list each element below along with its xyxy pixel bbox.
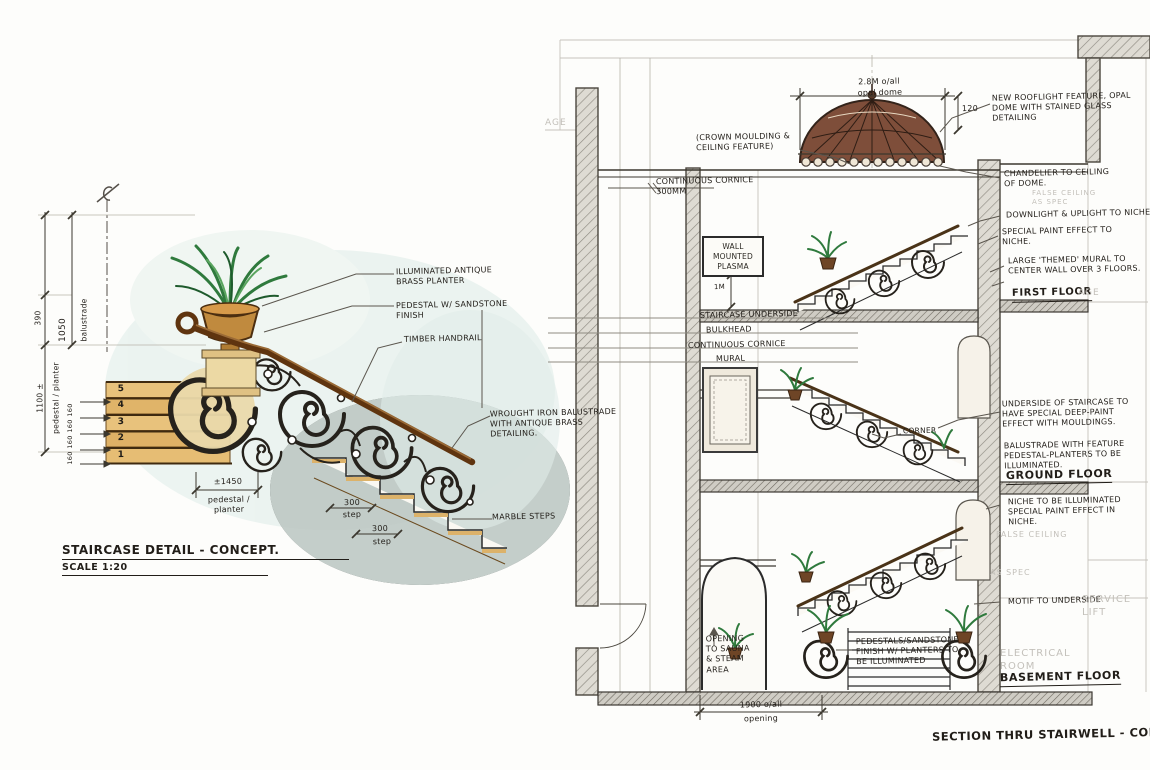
cad-fragment-left: AGE: [545, 118, 567, 130]
dim-riser-160: 160: [66, 403, 74, 416]
dim-1100: 1100 ±: [36, 383, 45, 413]
note-corner: CORNER: [903, 426, 937, 436]
note-timber-handrail: TIMBER HANDRAIL: [404, 333, 482, 345]
note-continuous-cornice-300: CONTINUOUS CORNICE 300MM: [656, 175, 768, 198]
dim-riser-160: 160: [66, 419, 74, 432]
note-rooflight: NEW ROOFLIGHT FEATURE, OPAL DOME WITH ST…: [992, 90, 1143, 124]
dim-dome-rise: 120: [962, 104, 978, 115]
cad-as-spec: AS SPEC: [990, 568, 1031, 578]
sketch-linework: [0, 0, 1150, 770]
centerline: [97, 184, 119, 352]
sandstone-pedestal: [202, 350, 260, 396]
dim-going-300: 300: [360, 524, 400, 535]
cad-false-ceiling: FALSE CEILING AS SPEC: [1032, 189, 1102, 207]
cad-fragment-first: AGE: [1078, 288, 1100, 300]
dim-going-word: step: [362, 537, 402, 548]
step-number: 2: [114, 433, 128, 445]
left-scale: SCALE 1:20: [62, 562, 268, 576]
note-niche-illuminated: NICHE TO BE ILLUMINATED SPECIAL PAINT EF…: [1008, 495, 1141, 528]
dim-going-word: step: [334, 510, 370, 521]
note-mural-wall: LARGE 'THEMED' MURAL TO CENTER WALL OVER…: [1008, 254, 1143, 277]
dim-balustrade-word: balustrade: [80, 298, 89, 341]
note-mural: MURAL: [716, 354, 745, 365]
framed-mirror: [703, 368, 757, 452]
dim-dome-width: 2.8M o/all: [848, 76, 910, 88]
floor-label-basement: BASEMENT FLOOR: [1000, 669, 1121, 688]
dim-riser-160: 160: [66, 451, 74, 464]
note-continuous-cornice: CONTINUOUS CORNICE: [688, 339, 786, 351]
dim-1050: 1050: [58, 318, 68, 342]
dim-opening-word: opening: [736, 713, 786, 724]
note-pedestal-sandstone: PEDESTAL W/ SANDSTONE FINISH: [396, 299, 508, 322]
dim-1450: ±1450: [197, 476, 259, 488]
note-wrought-iron-balustrade: WROUGHT IRON BALUSTRADE WITH ANTIQUE BRA…: [490, 407, 633, 441]
cad-false-ceiling-2: FALSE CEILING: [996, 530, 1067, 540]
step-number: 4: [114, 400, 128, 412]
dim-dome-word: opal dome: [850, 87, 910, 98]
left-title: STAIRCASE DETAIL - CONCEPT.: [62, 543, 349, 560]
note-bulkhead: BULKHEAD: [706, 325, 752, 336]
note-sauna-opening: OPENING TO SAUNA & STEAM AREA: [706, 633, 759, 675]
note-illuminated-planter: ILLUMINATED ANTIQUE BRASS PLANTER: [396, 265, 518, 288]
step-number: 3: [114, 417, 128, 429]
section-drawing: [545, 36, 1150, 720]
note-wall-mounted-plasma: WALL MOUNTED PLASMA: [702, 236, 764, 277]
step-number: 1: [114, 450, 128, 462]
note-crown-moulding: (CROWN MOULDING & CEILING FEATURE): [696, 131, 814, 154]
note-staircase-underside: STAIRCASE UNDERSIDE: [700, 309, 798, 321]
note-marble-steps: MARBLE STEPS: [492, 511, 556, 523]
dim-plasma-height: 1M: [714, 283, 725, 292]
dim-390: 390: [34, 310, 43, 325]
cad-service-lift: SERVICE LIFT: [1082, 594, 1140, 620]
note-paint-niche: SPECIAL PAINT EFFECT TO NICHE.: [1002, 225, 1122, 248]
architectural-sketch-page: ILLUMINATED ANTIQUE BRASS PLANTER PEDEST…: [0, 0, 1150, 770]
note-underside-paint: UNDERSIDE OF STAIRCASE TO HAVE SPECIAL D…: [1002, 397, 1145, 431]
dim-riser-160: 160: [66, 435, 74, 448]
dim-1100-word: pedestal / planter: [52, 362, 61, 434]
step-number: 5: [114, 384, 128, 396]
note-pedestal-planters: PEDESTALS/SANDSTONE FINISH W/ PLANTERS T…: [856, 635, 969, 668]
dim-1450-word: pedestal / planter: [197, 494, 261, 516]
note-chandelier: CHANDELIER TO CEILING OF DOME.: [1004, 167, 1122, 190]
dim-going-300: 300: [334, 498, 370, 509]
dim-opening-1900: 1900 o/all: [730, 699, 792, 711]
floor-label-ground: GROUND FLOOR: [1006, 467, 1113, 485]
